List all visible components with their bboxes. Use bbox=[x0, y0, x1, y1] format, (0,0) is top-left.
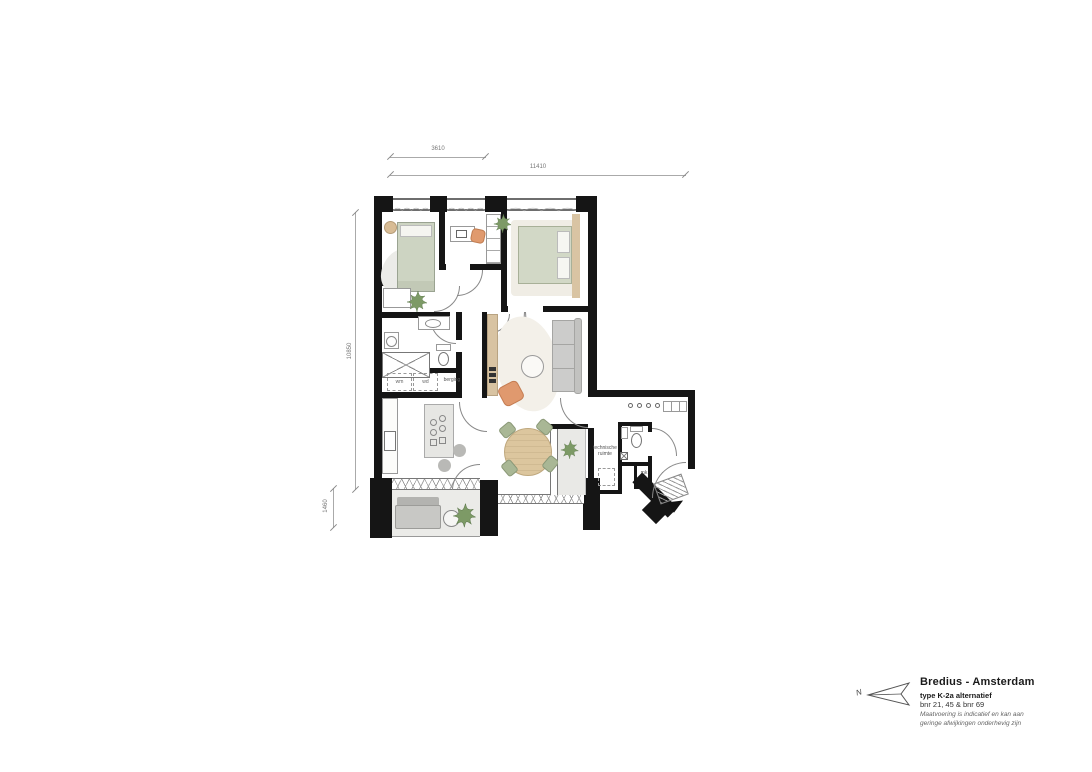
wall-segment bbox=[439, 212, 445, 268]
dim-line-left-lower bbox=[333, 488, 334, 528]
hob-burner bbox=[439, 415, 446, 422]
dim-label-top-inner: 3610 bbox=[410, 146, 466, 152]
wall-segment bbox=[456, 312, 462, 340]
pedestal-sink bbox=[384, 332, 399, 349]
curtain-icon bbox=[507, 204, 576, 213]
pillow bbox=[557, 257, 570, 279]
washer-label: wm bbox=[396, 379, 404, 385]
sofa bbox=[552, 320, 576, 392]
project-title: Bredius - Amsterdam bbox=[920, 676, 1035, 688]
wall-segment bbox=[596, 390, 695, 397]
tv-equipment bbox=[489, 373, 496, 377]
hob-burner bbox=[430, 429, 437, 436]
dryer: wd bbox=[413, 373, 438, 391]
door-study bbox=[457, 270, 483, 296]
dim-line-top-outer bbox=[390, 175, 686, 176]
kitchen-island bbox=[424, 404, 454, 458]
door-kitchen bbox=[459, 402, 487, 432]
meter-closet-label: mk bbox=[637, 471, 651, 477]
dryer-label: wd bbox=[422, 379, 428, 385]
dim-line-left-outer bbox=[355, 212, 356, 490]
hob-burner bbox=[430, 419, 437, 426]
basin bbox=[425, 319, 441, 328]
wall-segment bbox=[543, 306, 597, 312]
coffee-table bbox=[521, 355, 544, 378]
kitchen-counter bbox=[382, 398, 398, 474]
disclaimer-line2: geringe afwijkingen onderhevig zijn bbox=[920, 720, 1021, 727]
dim-label-left-outer: 10850 bbox=[347, 331, 353, 371]
washing-machine: wm bbox=[387, 373, 412, 391]
coat-hook bbox=[628, 403, 633, 408]
washbasin-counter bbox=[418, 316, 450, 330]
plant-icon bbox=[452, 502, 479, 530]
cistern bbox=[436, 344, 451, 351]
technical-room-label: technische ruimte bbox=[592, 446, 618, 458]
disclaimer-line1: Maatvoering is indicatief en kan aan bbox=[920, 711, 1024, 718]
wc-handbasin bbox=[621, 427, 628, 439]
floorplan-sheet: 3610 11410 10850 1460 bbox=[0, 0, 1092, 772]
headboard-panel bbox=[572, 214, 580, 298]
desk-chair bbox=[470, 228, 487, 245]
storage-label: berging bbox=[440, 378, 464, 384]
dim-tick bbox=[352, 486, 359, 493]
lounge-sofa-seat bbox=[395, 505, 441, 529]
toilet-bowl bbox=[438, 352, 449, 366]
north-arrow-icon bbox=[866, 680, 912, 708]
bedside-table bbox=[384, 221, 397, 234]
window-bedroom1 bbox=[393, 198, 430, 211]
toilet-bowl bbox=[631, 433, 642, 448]
dim-tick bbox=[682, 171, 689, 178]
plant-icon bbox=[406, 290, 430, 314]
cistern bbox=[630, 426, 643, 432]
disclaimer: Maatvoering is indicatief en kan aan ger… bbox=[920, 711, 1024, 729]
dim-tick bbox=[482, 153, 489, 160]
door-toilet bbox=[652, 428, 677, 456]
wall-segment bbox=[588, 196, 597, 392]
coat-hook bbox=[637, 403, 642, 408]
bar-stool bbox=[438, 459, 451, 472]
laptop bbox=[456, 230, 467, 238]
window-master-bedroom bbox=[507, 198, 576, 211]
heat-unit bbox=[598, 468, 615, 486]
wall-segment bbox=[374, 212, 382, 482]
curtain-icon bbox=[447, 204, 485, 213]
plant-icon bbox=[560, 438, 581, 462]
dim-line-top-inner bbox=[390, 157, 486, 158]
window-study bbox=[447, 198, 485, 211]
dim-label-top-outer: 11410 bbox=[510, 164, 566, 170]
sofa-backrest bbox=[574, 318, 582, 394]
wall-segment bbox=[374, 196, 393, 212]
kitchen-sink bbox=[384, 431, 396, 451]
toilet bbox=[436, 344, 451, 367]
wall-segment bbox=[430, 196, 447, 212]
wall-segment bbox=[485, 196, 507, 212]
island-sink bbox=[430, 439, 437, 446]
shoe-cabinet bbox=[663, 401, 687, 412]
pillow bbox=[557, 231, 570, 253]
coat-hook bbox=[655, 403, 660, 408]
north-label: N bbox=[855, 687, 863, 697]
curtain-icon bbox=[393, 204, 430, 213]
wall-segment bbox=[370, 478, 392, 538]
technical-room-label-line2: ruimte bbox=[598, 451, 612, 457]
single-bed bbox=[397, 222, 435, 292]
door-balcony bbox=[452, 464, 480, 490]
island-sink bbox=[439, 437, 446, 444]
bar-stool bbox=[453, 444, 466, 457]
double-bed bbox=[518, 226, 572, 284]
window-living-band bbox=[498, 494, 584, 504]
unit-numbers: bnr 21, 45 & bnr 69 bbox=[920, 700, 984, 709]
wall-segment bbox=[588, 388, 597, 397]
tv-equipment bbox=[489, 367, 496, 371]
tv-sideboard bbox=[487, 314, 498, 396]
wall-segment bbox=[480, 480, 498, 536]
plan-type: type K-2a alternatief bbox=[920, 691, 992, 700]
toilet-2 bbox=[627, 426, 643, 450]
sink-bowl bbox=[386, 336, 397, 347]
dim-label-left-lower: 1460 bbox=[323, 486, 329, 526]
coat-rack bbox=[626, 399, 688, 413]
coat-hook bbox=[646, 403, 651, 408]
tv-equipment bbox=[489, 379, 496, 383]
wall-segment bbox=[439, 264, 446, 270]
hob-burner bbox=[439, 425, 446, 432]
wall-segment bbox=[688, 397, 695, 469]
pillow bbox=[400, 225, 432, 237]
dim-tick bbox=[330, 524, 337, 531]
vent-symbol bbox=[620, 452, 628, 460]
